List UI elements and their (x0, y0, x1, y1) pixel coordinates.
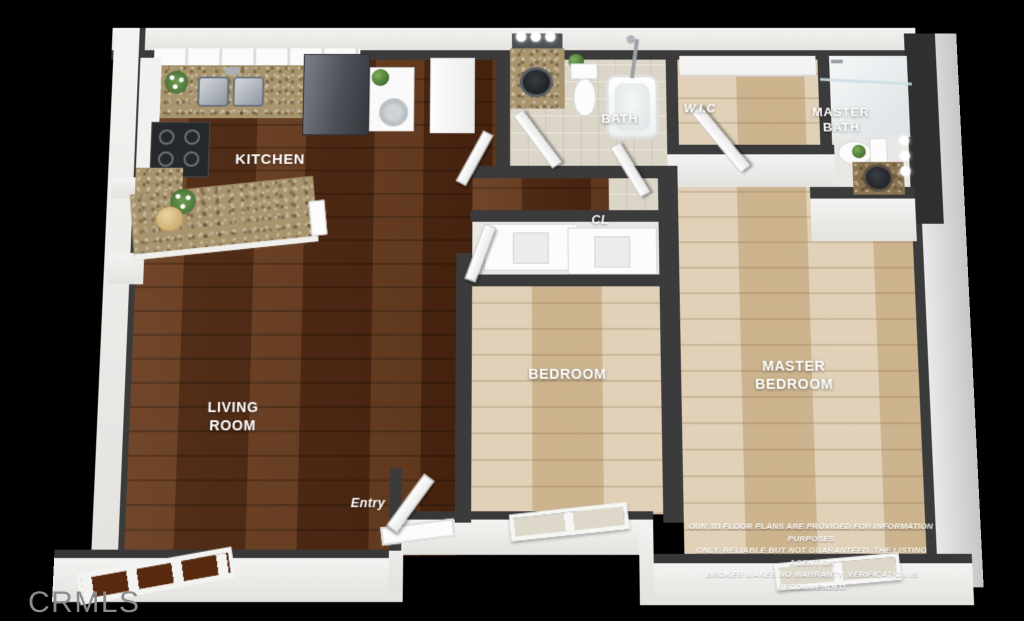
sink-basin-left (197, 77, 229, 107)
master-vanity-light (899, 150, 910, 161)
sink-basin-right (232, 77, 264, 107)
bath-label: BATH (601, 111, 638, 126)
stove-burner (159, 130, 175, 145)
master-bedroom-label: MASTER BEDROOM (755, 357, 834, 392)
bath-vanity-light (530, 32, 541, 42)
bath-vanity-light (545, 32, 556, 42)
master-bath-label: MASTER BATH (812, 105, 870, 136)
refrigerator (302, 54, 370, 135)
kitchen-pantry (430, 58, 475, 134)
wall-closet-north (470, 210, 660, 222)
wall-wic-south (667, 145, 835, 187)
closet-label: CL (591, 213, 608, 228)
washer-door (379, 98, 409, 126)
master-shower-head (831, 60, 843, 64)
wic-shelf (679, 56, 816, 77)
closet-door-panel (594, 236, 630, 267)
closet-sliding-door-right (567, 228, 657, 275)
kitchen-peninsula-end (309, 200, 328, 236)
closet-door-panel (513, 232, 549, 263)
kitchen-sink (197, 77, 266, 107)
kitchen-faucet (225, 67, 241, 75)
toilet-tank (570, 63, 597, 79)
stove-burner (158, 151, 174, 166)
wall-master-bath-south (810, 187, 917, 241)
wall-bedroom-north (470, 275, 661, 287)
toilet-bowl (573, 78, 596, 116)
floor-plan: KITCHEN LIVING ROOM BATH W.I.C MASTER BA… (55, 24, 968, 619)
wall-bath-south (473, 166, 684, 178)
disclaimer-line-3: BROKER MAKES NO WARRANTY. VERIFICATION I… (683, 569, 943, 593)
bedroom-floor (471, 286, 665, 514)
bath-sink (520, 67, 553, 97)
wic-label: W.I.C (684, 102, 716, 117)
master-vanity-light (898, 135, 909, 145)
closet-sliding-door-left (484, 224, 578, 271)
living-room-label: LIVING ROOM (207, 398, 259, 433)
bathtub (606, 75, 660, 139)
master-bath-plant (852, 145, 866, 158)
hallway-floor-left (472, 178, 609, 212)
master-sink (862, 164, 894, 192)
shower-head (626, 35, 635, 43)
kitchen-label: KITCHEN (235, 151, 305, 169)
wall-step-right (639, 520, 654, 598)
disclaimer-line-2: ONLY. RELIABLE BUT NOT GUARANTEED. THE L… (682, 545, 941, 569)
disclaimer-line-1: OUR 3D FLOOR PLANS ARE PROVIDED FOR INFO… (682, 521, 941, 545)
stove-burner (183, 151, 199, 166)
master-toilet-tank (869, 138, 888, 165)
master-bedroom-floor-right (814, 239, 927, 558)
floor-plan-scene: KITCHEN LIVING ROOM BATH W.I.C MASTER BA… (0, 0, 1024, 621)
bedroom-label: BEDROOM (528, 366, 606, 384)
master-vanity-light (900, 166, 911, 177)
wall-kitchen-bath (496, 56, 510, 177)
disclaimer-text: OUR 3D FLOOR PLANS ARE PROVIDED FOR INFO… (682, 521, 943, 594)
stove-burner (184, 130, 200, 145)
crmls-watermark: CRMLS (28, 586, 141, 620)
entry-label: Entry (351, 496, 386, 512)
bath-vanity-light (516, 32, 527, 42)
wall-living-bedroom (455, 253, 473, 523)
